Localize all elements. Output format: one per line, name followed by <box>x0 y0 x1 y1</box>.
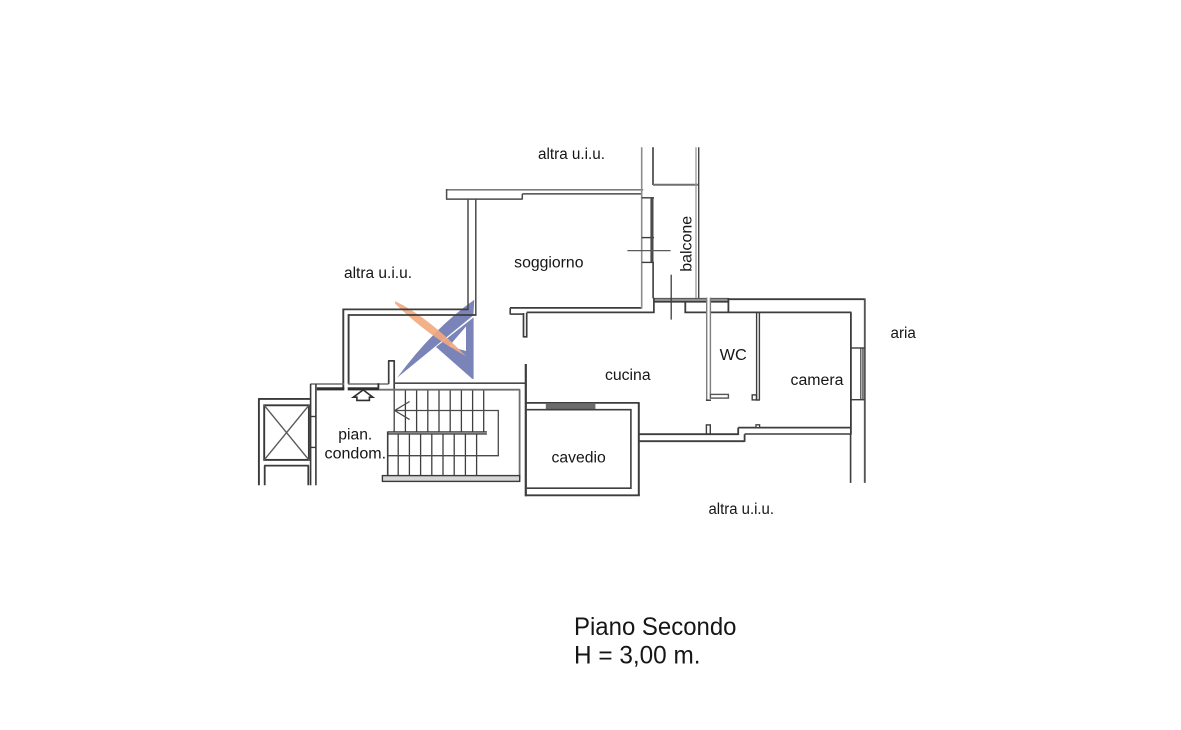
svg-text:Piano Secondo: Piano Secondo <box>574 613 737 641</box>
svg-text:pian.: pian. <box>338 427 372 444</box>
svg-text:balcone: balcone <box>679 216 696 272</box>
svg-text:cavedio: cavedio <box>552 449 606 466</box>
svg-text:camera: camera <box>791 372 844 389</box>
svg-text:H = 3,00 m.: H = 3,00 m. <box>574 642 701 670</box>
svg-text:soggiorno: soggiorno <box>514 255 583 272</box>
svg-text:cucina: cucina <box>605 367 651 384</box>
svg-text:WC: WC <box>720 347 747 364</box>
svg-text:altra u.i.u.: altra u.i.u. <box>344 265 412 282</box>
svg-text:altra u.i.u.: altra u.i.u. <box>538 146 605 163</box>
svg-text:condom.: condom. <box>325 446 387 463</box>
svg-text:altra u.i.u.: altra u.i.u. <box>709 501 775 518</box>
svg-text:aria: aria <box>891 325 917 342</box>
